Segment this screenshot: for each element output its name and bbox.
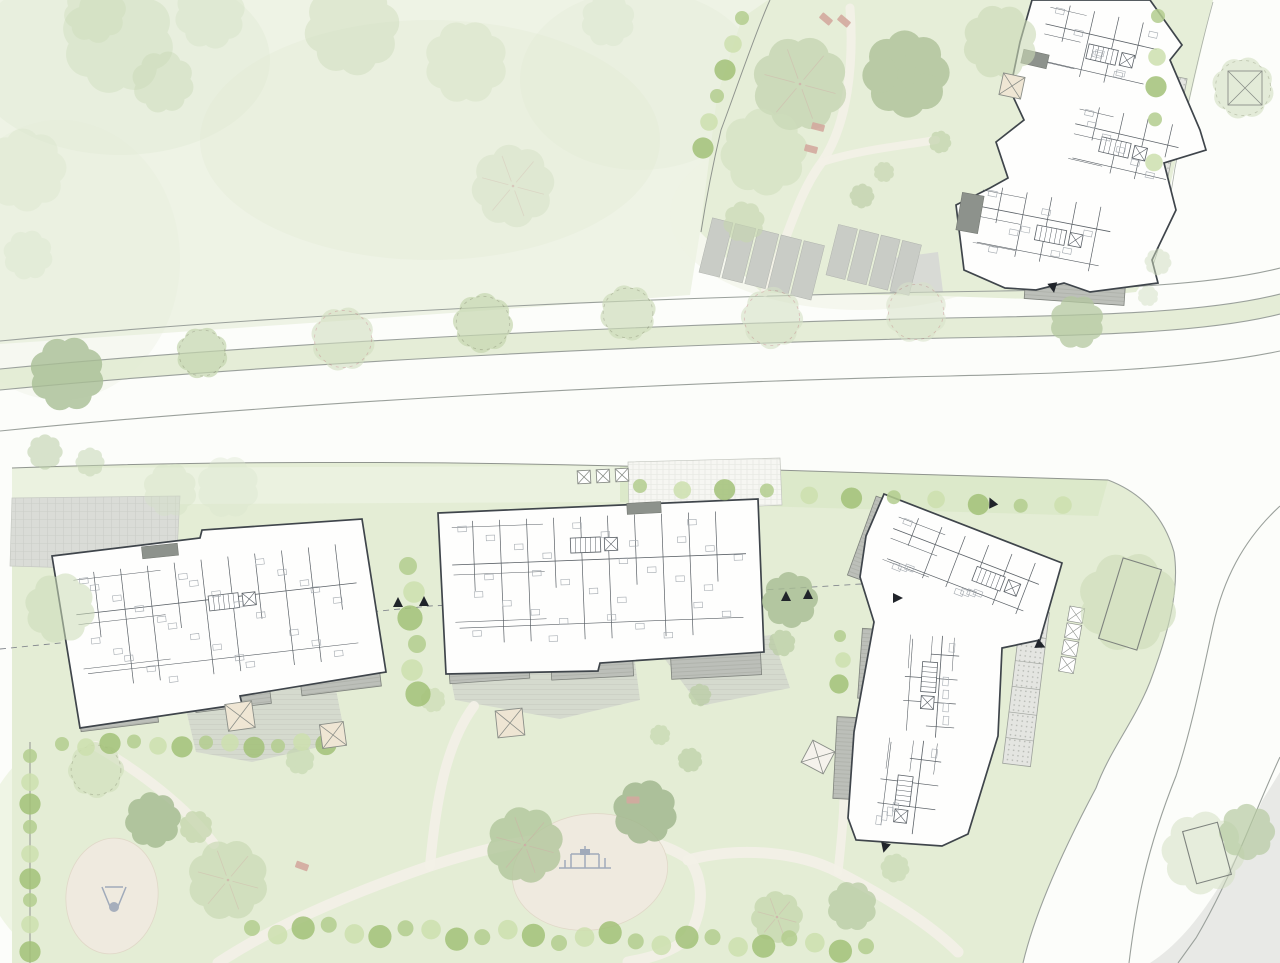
hedge-shrub: [399, 557, 417, 575]
hedge-shrub: [927, 491, 945, 509]
hedge-shrub: [23, 893, 37, 907]
hedge-shrub: [77, 738, 95, 756]
pavilion: [615, 468, 629, 482]
hedge-shrub: [19, 941, 40, 962]
hedge-shrub: [858, 938, 874, 954]
hedge-shrub: [887, 490, 901, 504]
hedge-shrub: [474, 929, 490, 945]
hedge-shrub: [829, 674, 848, 693]
pavilion: [225, 701, 255, 731]
hedge-shrub: [293, 733, 311, 751]
hedge-shrub: [19, 868, 40, 889]
hedge-shrub: [268, 925, 288, 945]
hedge-shrub: [292, 916, 315, 939]
hedge-shrub: [408, 635, 426, 653]
hedge-shrub: [1148, 48, 1166, 66]
site-plan: [0, 0, 1280, 963]
hedge-shrub: [398, 920, 414, 936]
bench: [627, 797, 640, 804]
hedge-shrub: [127, 734, 141, 748]
hedge-shrub: [781, 930, 797, 946]
hedge-shrub: [199, 735, 213, 749]
hedge-shrub: [834, 630, 846, 642]
pavilion: [495, 708, 525, 738]
tree: [721, 109, 808, 196]
hedge-shrub: [735, 11, 749, 25]
hedge-shrub: [23, 820, 37, 834]
hedge-shrub: [841, 487, 862, 508]
hedge-shrub: [345, 924, 365, 944]
hedge-shrub: [705, 929, 721, 945]
hedge-shrub: [575, 927, 595, 947]
hedge-shrub: [99, 733, 120, 754]
hedge-shrub: [498, 920, 518, 940]
balcony-slab: [627, 502, 662, 515]
hedge-shrub: [692, 137, 713, 158]
hedge-shrub: [149, 737, 167, 755]
hedge-shrub: [171, 736, 192, 757]
hedge-shrub: [714, 479, 735, 500]
hedge-shrub: [760, 483, 774, 497]
hedge-shrub: [728, 937, 748, 957]
hedge-shrub: [1151, 9, 1165, 23]
hedge-shrub: [652, 935, 672, 955]
hedge-shrub: [628, 933, 644, 949]
tree: [27, 434, 62, 469]
hedge-shrub: [1145, 154, 1163, 172]
hedge-shrub: [724, 35, 742, 53]
hedge-shrub: [805, 933, 825, 953]
tree: [862, 30, 949, 117]
pavilion: [999, 73, 1025, 99]
hedge-shrub: [19, 793, 40, 814]
hedge-shrub: [710, 89, 724, 103]
hedge-shrub: [244, 920, 260, 936]
hedge-shrub: [421, 920, 441, 940]
hedge-shrub: [397, 605, 422, 630]
hedge-shrub: [368, 925, 391, 948]
site-plan-canvas: [0, 0, 1280, 963]
hedge-shrub: [551, 935, 567, 951]
pavilion: [577, 470, 591, 484]
hedge-shrub: [522, 924, 545, 947]
pavilion: [596, 469, 610, 483]
tree: [689, 684, 712, 707]
tree: [453, 293, 513, 353]
hedge-shrub: [1148, 112, 1162, 126]
hedge-shrub: [829, 940, 852, 963]
pavilion: [319, 721, 346, 748]
hedge-shrub: [599, 921, 622, 944]
hedge-shrub: [633, 479, 647, 493]
hedge-shrub: [1054, 496, 1072, 514]
tree: [1145, 249, 1172, 276]
hedge-shrub: [968, 494, 989, 515]
hedge-shrub: [401, 659, 423, 681]
building-outline: [438, 499, 764, 674]
hedge-shrub: [835, 652, 851, 668]
hedge-shrub: [321, 917, 337, 933]
hedge-shrub: [714, 59, 735, 80]
hedge-shrub: [21, 845, 39, 863]
hedge-shrub: [674, 481, 692, 499]
hedge-shrub: [55, 737, 69, 751]
hedge-shrub: [700, 113, 718, 131]
hedge-shrub: [21, 916, 39, 934]
hedge-shrub: [403, 581, 425, 603]
tree: [850, 184, 875, 209]
hedge-shrub: [675, 926, 698, 949]
hedge-shrub: [243, 737, 264, 758]
building-b-floorplan: [438, 499, 764, 674]
hedge-shrub: [405, 681, 430, 706]
tree: [75, 447, 104, 476]
hedge-shrub: [23, 749, 37, 763]
hedge-shrub: [800, 487, 818, 505]
hedge-shrub: [752, 935, 775, 958]
hedge-shrub: [21, 773, 39, 791]
hedge-shrub: [271, 739, 285, 753]
hedge-shrub: [1014, 499, 1028, 513]
hedge-shrub: [221, 734, 239, 752]
tree: [741, 287, 803, 349]
tree: [1219, 804, 1275, 860]
hedge-shrub: [1145, 76, 1166, 97]
hedge-shrub: [445, 928, 468, 951]
